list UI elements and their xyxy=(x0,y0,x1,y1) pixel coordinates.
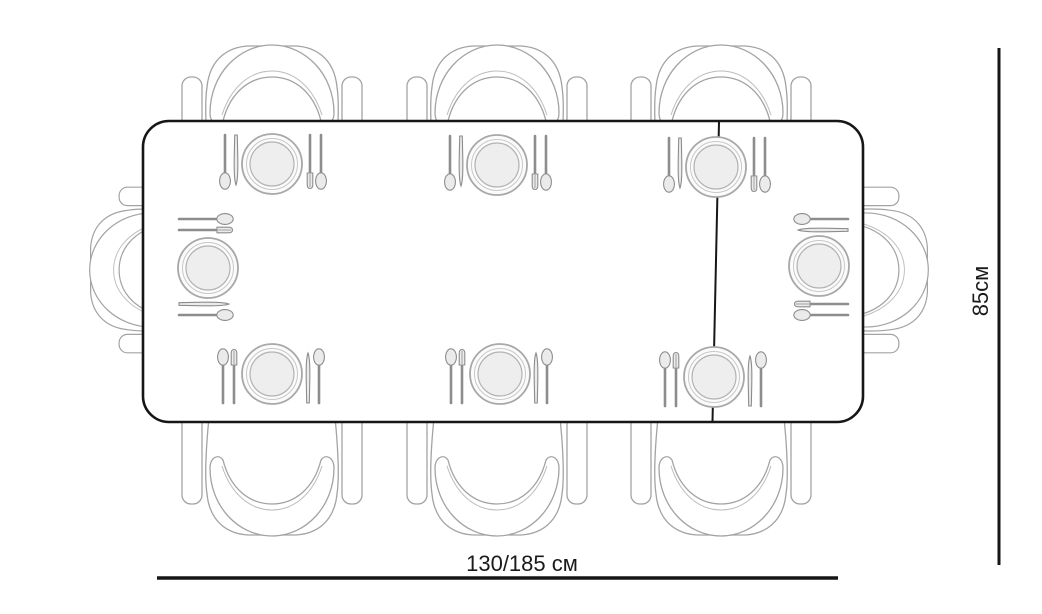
place-setting-top-right xyxy=(664,137,771,197)
length-dimension-label: 130/185 см xyxy=(402,551,642,577)
place-setting-bottom-left xyxy=(218,344,325,404)
table-scene xyxy=(0,0,1042,614)
place-setting-top-left xyxy=(220,134,327,194)
table-layout-diagram: 130/185 см 85см xyxy=(0,0,1042,614)
depth-dimension-label: 85см xyxy=(968,266,994,317)
place-setting-left-end xyxy=(178,214,238,321)
place-setting-right-end xyxy=(789,214,849,321)
place-setting-bottom-right xyxy=(660,347,767,407)
place-setting-bottom-middle xyxy=(446,344,553,404)
place-setting-top-middle xyxy=(445,135,552,195)
